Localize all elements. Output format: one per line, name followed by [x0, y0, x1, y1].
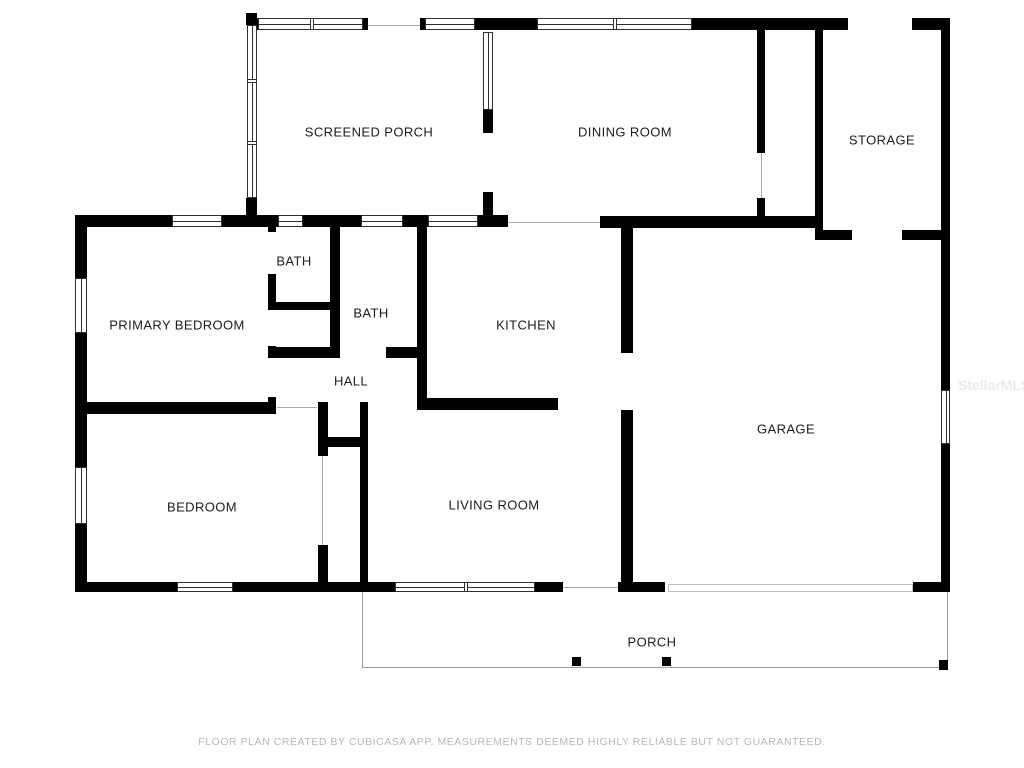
wall-segment	[493, 18, 537, 30]
garage-door-symbol	[668, 584, 913, 592]
window-symbol	[483, 32, 493, 110]
wall-segment	[941, 444, 950, 592]
window-symbol	[172, 215, 222, 227]
room-label-porch: PORCH	[628, 635, 677, 650]
wall-segment	[246, 198, 257, 227]
wall-segment	[535, 582, 563, 592]
wall-segment	[318, 402, 328, 456]
wall-segment	[75, 333, 87, 467]
room-label-kitchen: KITCHEN	[496, 318, 556, 333]
room-label-screened-porch: SCREENED PORCH	[305, 125, 433, 140]
porch-post	[939, 660, 948, 670]
wall-segment	[618, 582, 665, 592]
window-pane-line	[81, 468, 82, 523]
porch-outline-line	[947, 592, 948, 668]
floor-plan-canvas: StellarMLS FLOOR PLAN CREATED BY CUBICAS…	[0, 0, 1024, 768]
window-pane-line	[81, 279, 82, 332]
door-opening-line	[322, 456, 323, 545]
room-label-bath-2: BATH	[353, 306, 388, 321]
wall-segment	[360, 402, 368, 592]
wall-segment	[268, 215, 276, 232]
window-pane-line	[429, 221, 477, 222]
porch-post	[662, 657, 671, 666]
window-symbol	[177, 582, 233, 592]
wall-segment	[268, 302, 340, 310]
wall-segment	[475, 18, 493, 30]
window-pane-line	[252, 26, 253, 197]
window-mullion	[310, 19, 314, 29]
window-symbol	[395, 582, 535, 592]
room-label-storage: STORAGE	[849, 133, 915, 148]
door-opening-line	[508, 222, 600, 223]
wall-segment	[417, 227, 427, 410]
room-label-dining-room: DINING ROOM	[578, 125, 672, 140]
room-label-bedroom: BEDROOM	[167, 500, 237, 515]
porch-outline-line	[362, 667, 948, 668]
wall-segment	[75, 215, 172, 227]
window-symbol	[537, 18, 692, 30]
wall-segment	[902, 230, 941, 240]
wall-segment	[233, 582, 395, 592]
window-symbol	[278, 215, 303, 227]
window-symbol	[361, 215, 403, 227]
wall-segment	[913, 582, 948, 592]
window-symbol	[425, 18, 475, 30]
wall-segment	[621, 217, 633, 353]
footer-disclaimer: FLOOR PLAN CREATED BY CUBICASA APP. MEAS…	[198, 736, 826, 748]
window-pane-line	[426, 24, 474, 25]
window-mullion	[613, 19, 617, 29]
wall-segment	[75, 215, 87, 278]
wall-segment	[82, 402, 275, 414]
door-opening-line	[277, 407, 317, 408]
wall-segment	[417, 398, 558, 410]
window-pane-line	[946, 391, 947, 443]
window-symbol	[247, 25, 257, 198]
door-opening-line	[563, 587, 618, 588]
window-pane-line	[279, 221, 302, 222]
room-label-garage: GARAGE	[757, 422, 815, 437]
room-label-living-room: LIVING ROOM	[448, 498, 539, 513]
wall-segment	[303, 215, 361, 227]
wall-segment	[403, 215, 428, 227]
door-opening-line	[368, 25, 420, 26]
wall-segment	[386, 347, 427, 358]
wall-segment	[692, 18, 848, 30]
window-pane-line	[362, 221, 402, 222]
window-mullion	[248, 79, 256, 83]
porch-outline-line	[362, 592, 363, 668]
wall-segment	[941, 18, 950, 390]
wall-segment	[483, 192, 493, 227]
window-pane-line	[488, 33, 489, 109]
wall-segment	[75, 582, 177, 592]
window-pane-line	[173, 221, 221, 222]
wall-segment	[318, 437, 368, 447]
watermark-stellar-mls: StellarMLS	[958, 377, 1024, 393]
window-symbol	[428, 215, 478, 227]
wall-segment	[246, 13, 257, 25]
room-label-hall: HALL	[334, 374, 368, 389]
wall-segment	[621, 410, 633, 592]
door-opening-line	[761, 153, 762, 198]
wall-segment	[757, 30, 765, 153]
window-mullion	[464, 583, 468, 591]
wall-segment	[815, 22, 823, 240]
wall-segment	[757, 198, 765, 228]
wall-segment	[363, 18, 368, 30]
window-symbol	[941, 390, 950, 444]
room-label-bath-1: BATH	[276, 254, 311, 269]
window-mullion	[248, 141, 256, 145]
window-symbol	[258, 18, 363, 30]
wall-segment	[483, 110, 493, 133]
window-symbol	[75, 278, 87, 333]
porch-post	[572, 657, 581, 666]
wall-segment	[600, 216, 823, 228]
wall-segment	[268, 347, 340, 358]
window-symbol	[75, 467, 87, 524]
window-pane-line	[178, 587, 232, 588]
room-label-primary-bedroom: PRIMARY BEDROOM	[109, 318, 245, 333]
wall-segment	[330, 227, 340, 358]
